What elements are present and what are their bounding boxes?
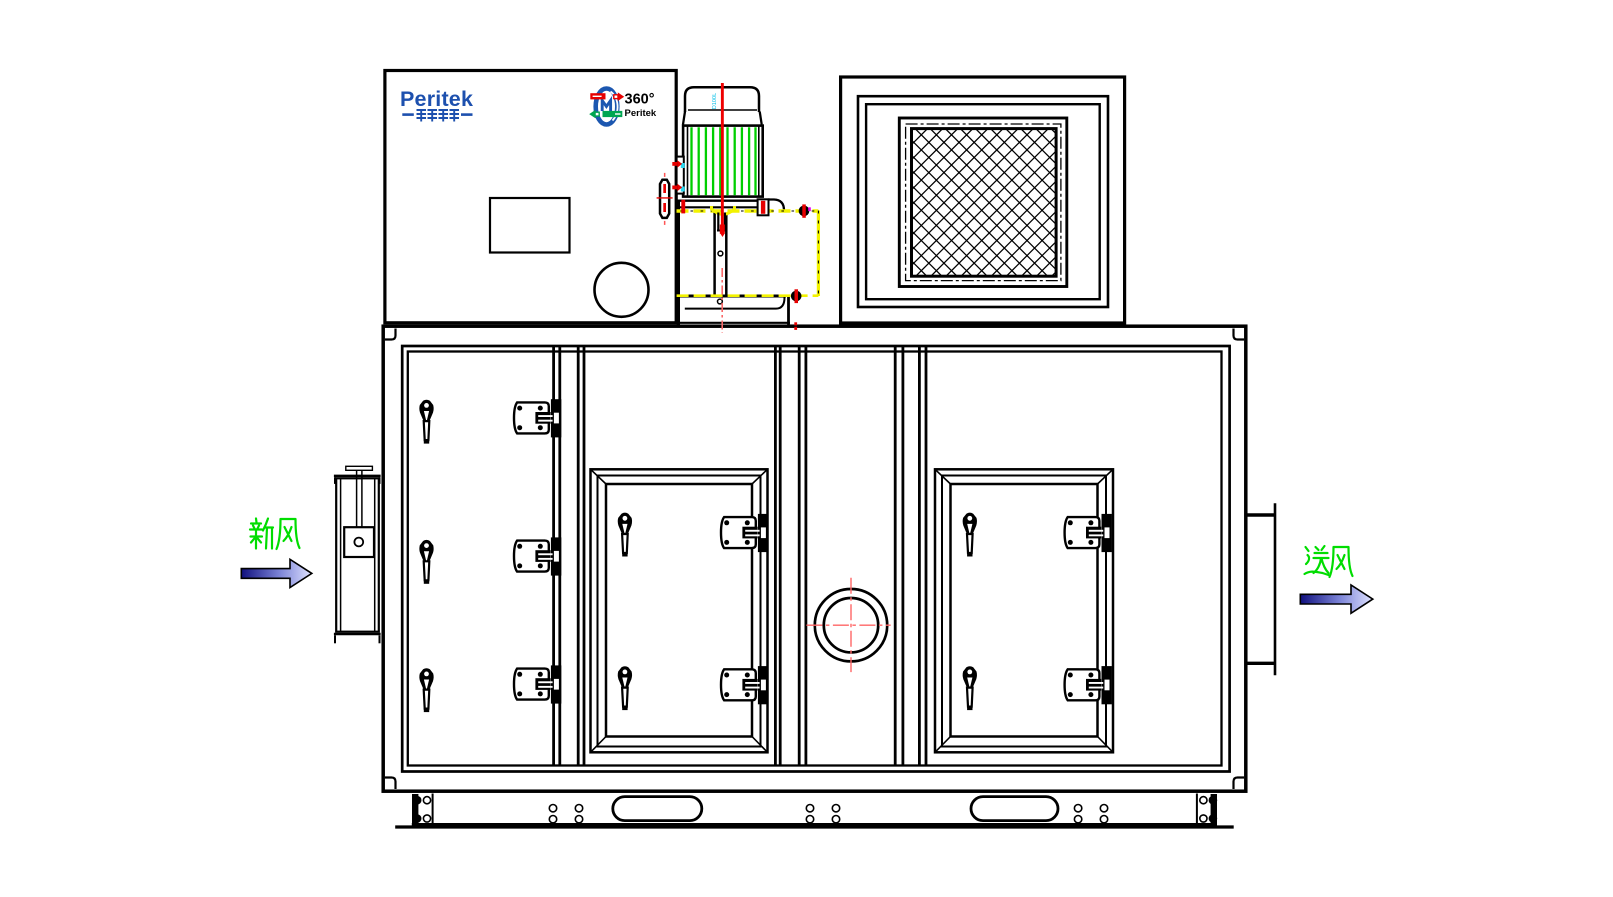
svg-text:Peritek: Peritek — [400, 87, 473, 111]
svg-text:D100L: D100L — [712, 93, 718, 109]
svg-text:360°: 360° — [625, 92, 655, 108]
svg-text:Peritek: Peritek — [625, 108, 657, 119]
